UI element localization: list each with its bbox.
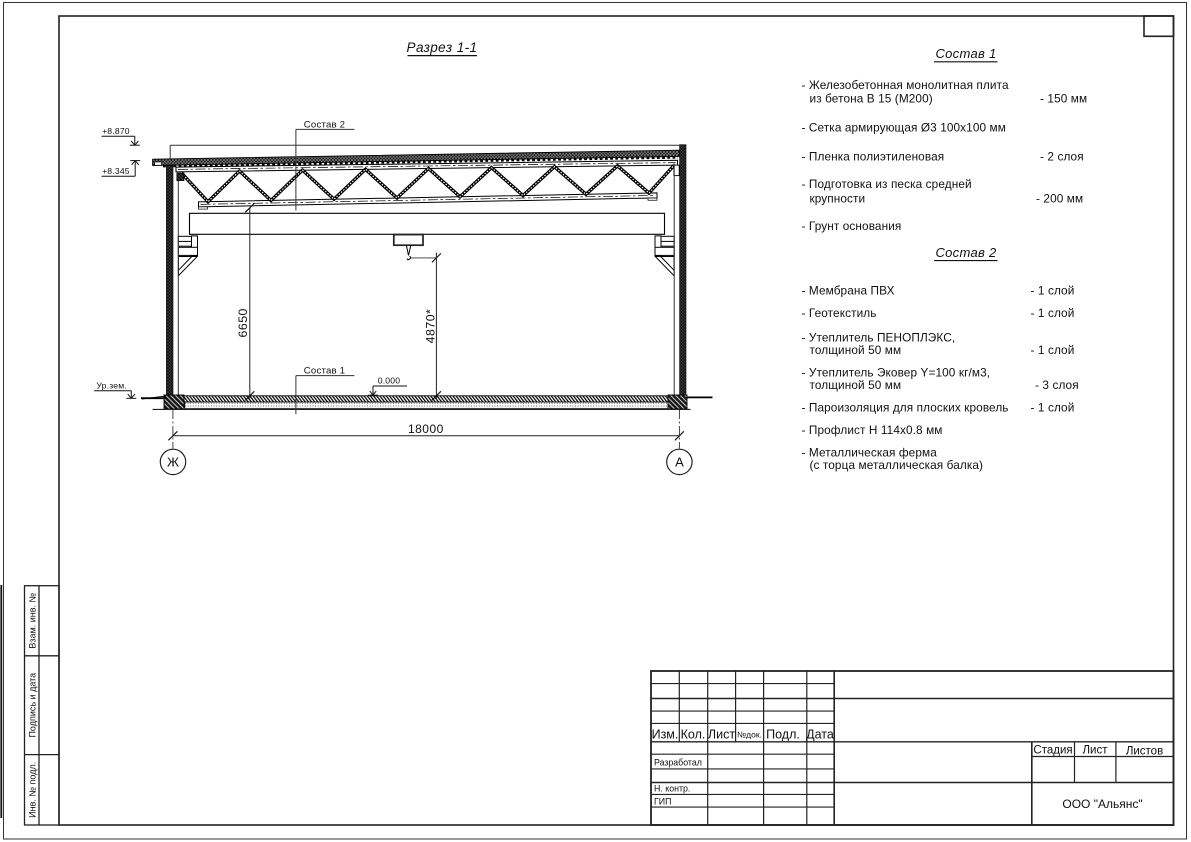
svg-text:- Сетка армирующая Ø3 100х100: - Сетка армирующая Ø3 100х100 мм [802,120,1006,134]
svg-text:Взам. инв. №: Взам. инв. № [28,592,38,648]
svg-text:0.000: 0.000 [378,375,401,385]
svg-text:Подпись и дата: Подпись и дата [28,673,38,738]
svg-text:А: А [675,454,684,469]
svg-text:Состав 1: Состав 1 [304,365,345,376]
svg-text:- 1 слой: - 1 слой [1031,306,1075,320]
svg-text:4870*: 4870* [423,309,437,344]
svg-text:- Пароизоляция для плоских кро: - Пароизоляция для плоских кровель [802,400,1009,414]
svg-text:Разработал: Разработал [654,758,702,768]
svg-text:- 3 слоя: - 3 слоя [1035,378,1079,392]
svg-text:- Мембрана ПВХ: - Мембрана ПВХ [802,284,895,298]
svg-text:(с торца металлическая балка): (с торца металлическая балка) [810,458,984,472]
svg-text:толщиной 50 мм: толщиной 50 мм [810,378,902,392]
svg-text:Подл.: Подл. [766,728,800,742]
svg-text:- 1 слой: - 1 слой [1031,343,1075,357]
svg-text:Разрез 1-1: Разрез 1-1 [407,40,478,55]
svg-text:ООО "Альянс": ООО "Альянс" [1062,797,1142,811]
svg-text:Стадия: Стадия [1033,745,1072,757]
svg-text:толщиной 50 мм: толщиной 50 мм [810,343,902,357]
svg-text:18000: 18000 [408,422,444,436]
svg-text:- Геотекстиль: - Геотекстиль [802,306,877,320]
svg-text:ГИП: ГИП [654,797,671,807]
svg-text:Ж: Ж [167,454,179,469]
svg-text:Лист: Лист [1083,745,1109,757]
svg-text:Состав 2: Состав 2 [935,245,997,260]
svg-text:Дата: Дата [806,728,834,742]
svg-text:- 2 слоя: - 2 слоя [1040,150,1084,164]
svg-text:- Грунт основания: - Грунт основания [802,219,902,233]
svg-text:Кол.: Кол. [681,728,706,742]
svg-text:Изм.: Изм. [652,728,679,742]
svg-text:- 150 мм: - 150 мм [1040,91,1087,105]
svg-text:- 1 слой: - 1 слой [1031,400,1075,414]
svg-text:Лист: Лист [708,728,735,742]
svg-text:Ур.зем.: Ур.зем. [96,380,127,390]
svg-text:Н. контр.: Н. контр. [654,784,690,794]
svg-text:№док.: №док. [737,730,762,740]
svg-text:Состав 1: Состав 1 [935,46,996,61]
svg-text:Листов: Листов [1126,746,1163,758]
svg-text:- 1 слой: - 1 слой [1031,284,1075,298]
svg-text:+8.870: +8.870 [102,126,130,136]
svg-text:из бетона В 15 (М200): из бетона В 15 (М200) [810,91,933,105]
svg-text:Инв. № подл.: Инв. № подл. [28,762,38,818]
svg-text:- Профлист Н 114х0.8 мм: - Профлист Н 114х0.8 мм [802,423,943,437]
svg-text:Состав 2: Состав 2 [304,119,345,130]
svg-text:+8.345: +8.345 [102,166,130,176]
svg-text:крупности: крупности [810,191,866,205]
svg-text:- Пленка полиэтиленовая: - Пленка полиэтиленовая [802,150,945,164]
svg-text:- Подготовка из песка средней: - Подготовка из песка средней [802,177,972,191]
svg-text:6650: 6650 [236,308,250,337]
svg-text:- Железобетонная монолитная п: - Железобетонная монолитная плита [802,78,1009,92]
svg-text:- 200 мм: - 200 мм [1036,191,1083,205]
